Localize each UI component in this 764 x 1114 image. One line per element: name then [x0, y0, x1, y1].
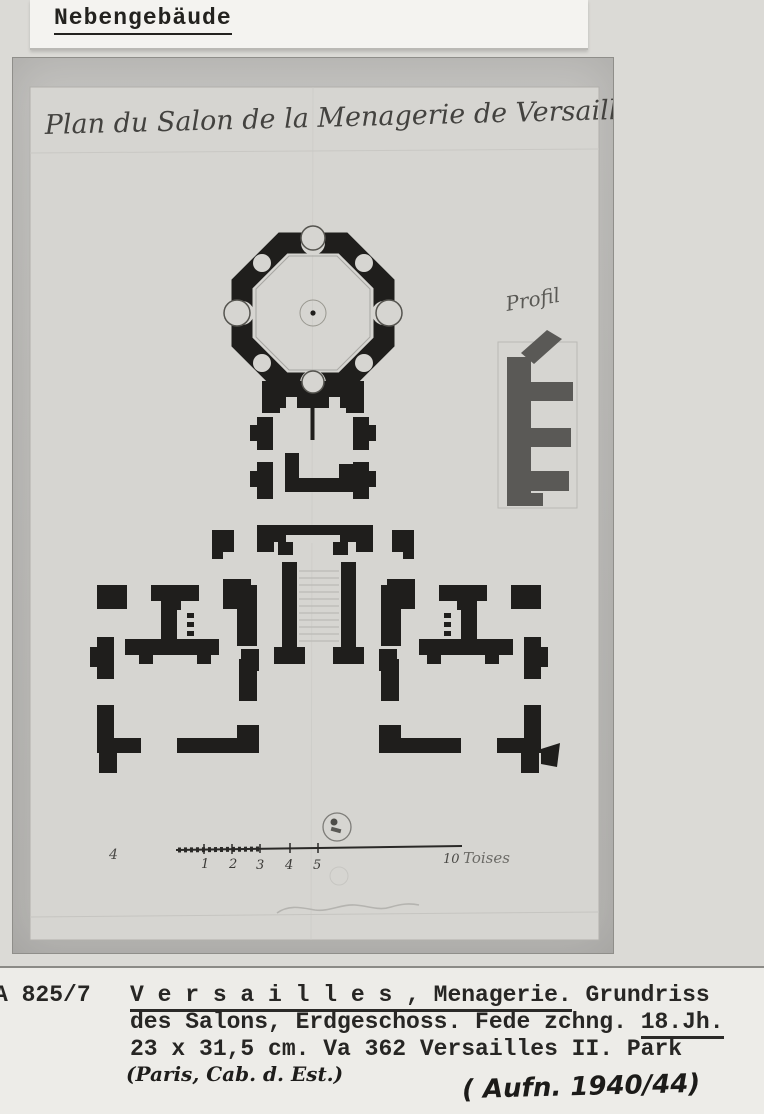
scale-tick-label: 4: [284, 858, 293, 873]
plan-drawing-svg: Plan du Salon de la Menagerie de Versail…: [13, 58, 613, 953]
inventory-number: A 825/7: [0, 982, 91, 1008]
handwritten-photo-note: ( Aufn. 1940/44): [462, 1069, 701, 1105]
caption-title-underlined: V e r s a i l l e s , Menagerie.: [130, 982, 572, 1012]
archive-label: Nebengebäude: [30, 0, 588, 50]
caption-century-underlined: 18.Jh.: [641, 1009, 724, 1039]
caption-line-2: des Salons, Erdgeschoss. Fede zchng. 18.…: [130, 1009, 724, 1035]
scale-tick-label: 3: [256, 858, 264, 873]
scale-tick-label: 2: [228, 857, 237, 872]
right-bay: [376, 300, 402, 326]
caption-title-rest: Grundriss: [572, 982, 710, 1008]
archive-label-text: Nebengebäude: [54, 5, 232, 35]
caption-line-1: V e r s a i l l e s , Menagerie. Grundri…: [130, 982, 710, 1008]
top-niche: [301, 226, 325, 250]
center-dot: [310, 310, 315, 315]
vestibule: [250, 371, 376, 499]
scale-tick-label: 1: [201, 857, 209, 872]
archive-card: Nebengebäude Plan du Salon de la Menager…: [0, 0, 764, 1114]
caption-line-2-main: des Salons, Erdgeschoss. Fede zchng.: [130, 1009, 641, 1035]
handwritten-location-note: (Paris, Cab. d. Est.): [126, 1062, 343, 1086]
scale-tick-label: 5: [313, 858, 321, 873]
scale-unit-label: Toises: [463, 849, 510, 867]
photo-of-drawing: Plan du Salon de la Menagerie de Versail…: [12, 57, 614, 954]
caption-line-3: 23 x 31,5 cm. Va 362 Versailles II. Park: [130, 1036, 682, 1062]
left-bay: [224, 300, 250, 326]
drawing-sheet: [30, 87, 599, 940]
scale-end-label: 10: [443, 852, 460, 867]
scale-left-mark: 4: [108, 847, 118, 863]
